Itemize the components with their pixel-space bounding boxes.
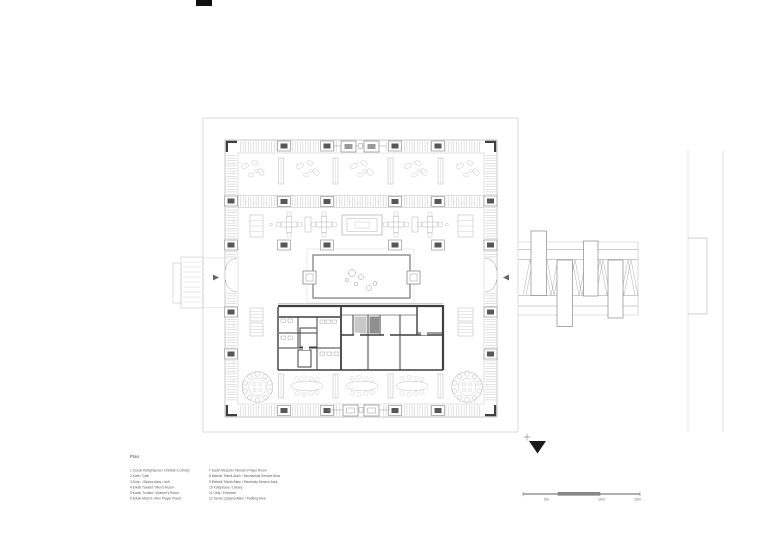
scale-bar: 5m 10m 15m: [523, 492, 641, 502]
scale-label-10m: 10m: [598, 498, 605, 502]
legend-item: 6 Erkek Mescit / Men Prayer Room: [130, 496, 209, 502]
legend-item: 12 Servis Çalışma Alanı / Parking Area: [209, 496, 288, 502]
drawing-sheet: 5m 10m 15m Plan 1 Çocuk Kütüphanesi / Ch…: [0, 0, 768, 543]
legend-column-right: 7 Kadın Mescidi / Women Prayer Room 8 Ma…: [209, 468, 288, 502]
floor-plan-drawing: 5m 10m 15m: [0, 0, 768, 543]
pedestrian-bridge: [519, 231, 639, 327]
top-edge-mark: [196, 0, 212, 6]
legend: 1 Çocuk Kütüphanesi / Children's Library…: [130, 468, 288, 502]
scale-label-15m: 15m: [634, 498, 641, 502]
exterior-stair: [173, 257, 225, 308]
interior-shelving-rows: [238, 196, 484, 208]
scale-label-5m: 5m: [544, 498, 549, 502]
courtyard-pool: [303, 249, 420, 303]
site-context-lines: [688, 150, 723, 432]
reading-furniture: [241, 158, 483, 402]
legend-item: 8 Makine Teknik Alanı / Mechanical Servi…: [209, 474, 288, 480]
north-arrow-icon: [524, 434, 547, 454]
drawing-title: Plan: [130, 454, 139, 459]
legend-column-left: 1 Çocuk Kütüphanesi / Children's Library…: [130, 468, 209, 502]
